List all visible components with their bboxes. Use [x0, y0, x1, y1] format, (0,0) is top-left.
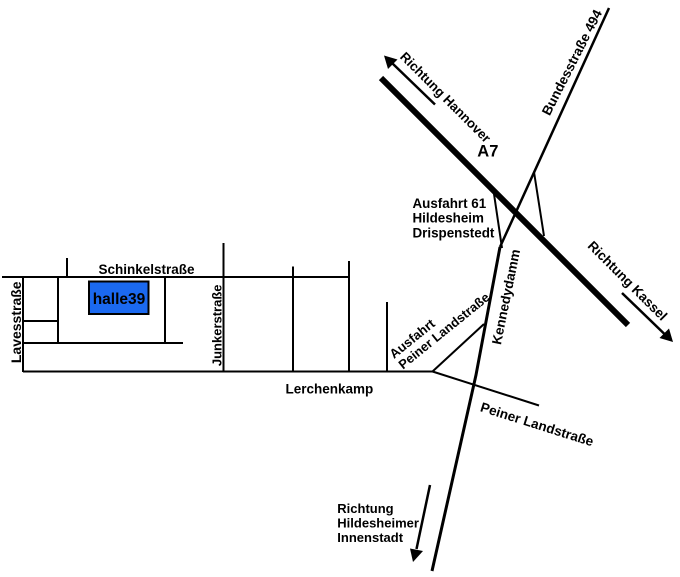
- svg-text:Lavesstraße: Lavesstraße: [8, 281, 24, 363]
- svg-text:Lerchenkamp: Lerchenkamp: [286, 382, 374, 397]
- svg-text:Schinkelstraße: Schinkelstraße: [99, 262, 196, 277]
- svg-text:Richtung Kassel: Richtung Kassel: [585, 238, 670, 323]
- svg-text:Drispenstedt: Drispenstedt: [413, 226, 495, 241]
- svg-text:halle39: halle39: [93, 291, 146, 308]
- svg-text:Bundesstraße 494: Bundesstraße 494: [539, 7, 605, 118]
- svg-text:Richtung Hannover: Richtung Hannover: [397, 49, 494, 146]
- svg-text:A7: A7: [477, 143, 498, 161]
- svg-text:Innenstadt: Innenstadt: [337, 530, 403, 545]
- svg-text:Peiner Landstraße: Peiner Landstraße: [479, 400, 596, 450]
- svg-text:Kennedydamm: Kennedydamm: [489, 248, 523, 346]
- svg-text:Junkerstraße: Junkerstraße: [209, 284, 224, 366]
- svg-text:Hildesheim: Hildesheim: [413, 211, 485, 226]
- svg-text:Richtung: Richtung: [337, 501, 393, 516]
- svg-text:Ausfahrt 61: Ausfahrt 61: [413, 196, 487, 211]
- svg-text:Hildesheimer: Hildesheimer: [337, 516, 419, 531]
